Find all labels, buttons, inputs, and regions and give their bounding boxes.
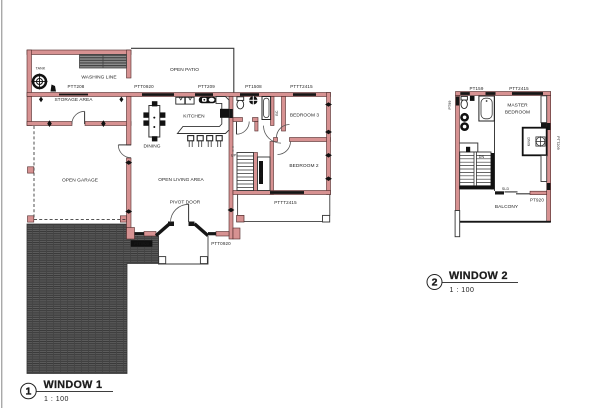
svg-text:BEDROOM 2: BEDROOM 2 (289, 163, 319, 169)
svg-text:MASTER: MASTER (507, 103, 528, 109)
svg-text:PT920: PT920 (530, 198, 544, 203)
svg-text:WASHING LINE: WASHING LINE (81, 75, 116, 81)
svg-text:DN: DN (479, 155, 485, 159)
svg-text:PIVOT DOOR: PIVOT DOOR (170, 200, 201, 206)
svg-text:PTT0920: PTT0920 (134, 84, 154, 89)
svg-text:KING: KING (527, 137, 531, 146)
svg-text:BC: BC (275, 110, 279, 115)
svg-text:BALCONY: BALCONY (495, 204, 519, 210)
svg-text:OPEN PATIO: OPEN PATIO (170, 67, 199, 73)
svg-text:PTTT2415: PTTT2415 (290, 84, 313, 89)
svg-text:PTT0920: PTT0920 (134, 242, 149, 246)
svg-text:SLD: SLD (502, 187, 510, 191)
svg-text:OPEN LIVING AREA: OPEN LIVING AREA (158, 177, 204, 183)
svg-text:PT1508: PT1508 (245, 84, 262, 89)
svg-text:STORAGE AREA: STORAGE AREA (54, 97, 93, 103)
svg-text:WINDOW 2: WINDOW 2 (449, 270, 508, 282)
svg-text:TANK: TANK (36, 67, 46, 71)
svg-text:PTT208: PTT208 (68, 84, 85, 89)
svg-text:UP: UP (231, 154, 237, 158)
svg-text:PTT209: PTT209 (198, 84, 215, 89)
svg-text:DINING: DINING (143, 144, 160, 150)
svg-text:PTTT2415: PTTT2415 (274, 200, 297, 205)
svg-text:OPEN GARAGE: OPEN GARAGE (62, 178, 98, 184)
svg-text:WINDOW 1: WINDOW 1 (44, 379, 103, 391)
svg-text:KITCHEN: KITCHEN (183, 113, 205, 119)
svg-text:PT159: PT159 (469, 86, 483, 91)
svg-text:PT99: PT99 (448, 101, 452, 110)
svg-text:PTT2415: PTT2415 (509, 86, 529, 91)
svg-text:1 : 100: 1 : 100 (44, 396, 69, 403)
svg-text:PTT0920: PTT0920 (211, 241, 231, 246)
svg-text:2: 2 (432, 277, 438, 289)
svg-text:PTT209: PTT209 (556, 136, 560, 149)
svg-text:BEDROOM 3: BEDROOM 3 (290, 113, 320, 119)
svg-text:BEDROOM: BEDROOM (505, 110, 530, 116)
svg-text:1 : 100: 1 : 100 (450, 287, 475, 294)
svg-text:BC: BC (259, 171, 263, 176)
svg-text:1: 1 (25, 386, 31, 398)
